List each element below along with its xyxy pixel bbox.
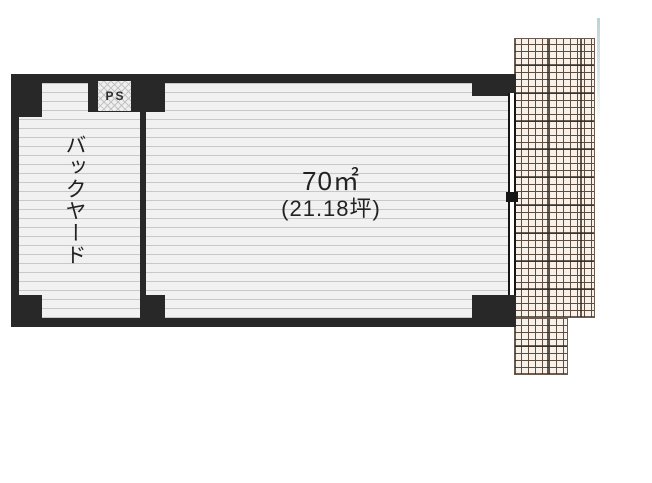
floor-plan: PS 70㎡ (21.18坪) バックヤード: [0, 0, 652, 483]
area-m2-text: 70㎡: [231, 166, 431, 196]
area-tsubo-text: (21.18坪): [231, 196, 431, 222]
ps-box: PS: [98, 81, 131, 111]
pillar-bottom-right: [472, 295, 516, 327]
backyard-label: バックヤード: [60, 134, 88, 270]
pillar-top-left: [11, 74, 42, 117]
main-room-area-label: 70㎡ (21.18坪): [231, 166, 431, 222]
scan-artifact-line: [597, 18, 600, 128]
ps-label: PS: [103, 90, 125, 102]
adjacent-hatched-area-upper: [514, 38, 595, 318]
window-joint-marker: [506, 192, 518, 202]
pillar-bottom-left: [11, 295, 42, 327]
adjacent-hatched-area-lower: [514, 318, 568, 375]
pillar-bottom-middle: [140, 295, 165, 327]
